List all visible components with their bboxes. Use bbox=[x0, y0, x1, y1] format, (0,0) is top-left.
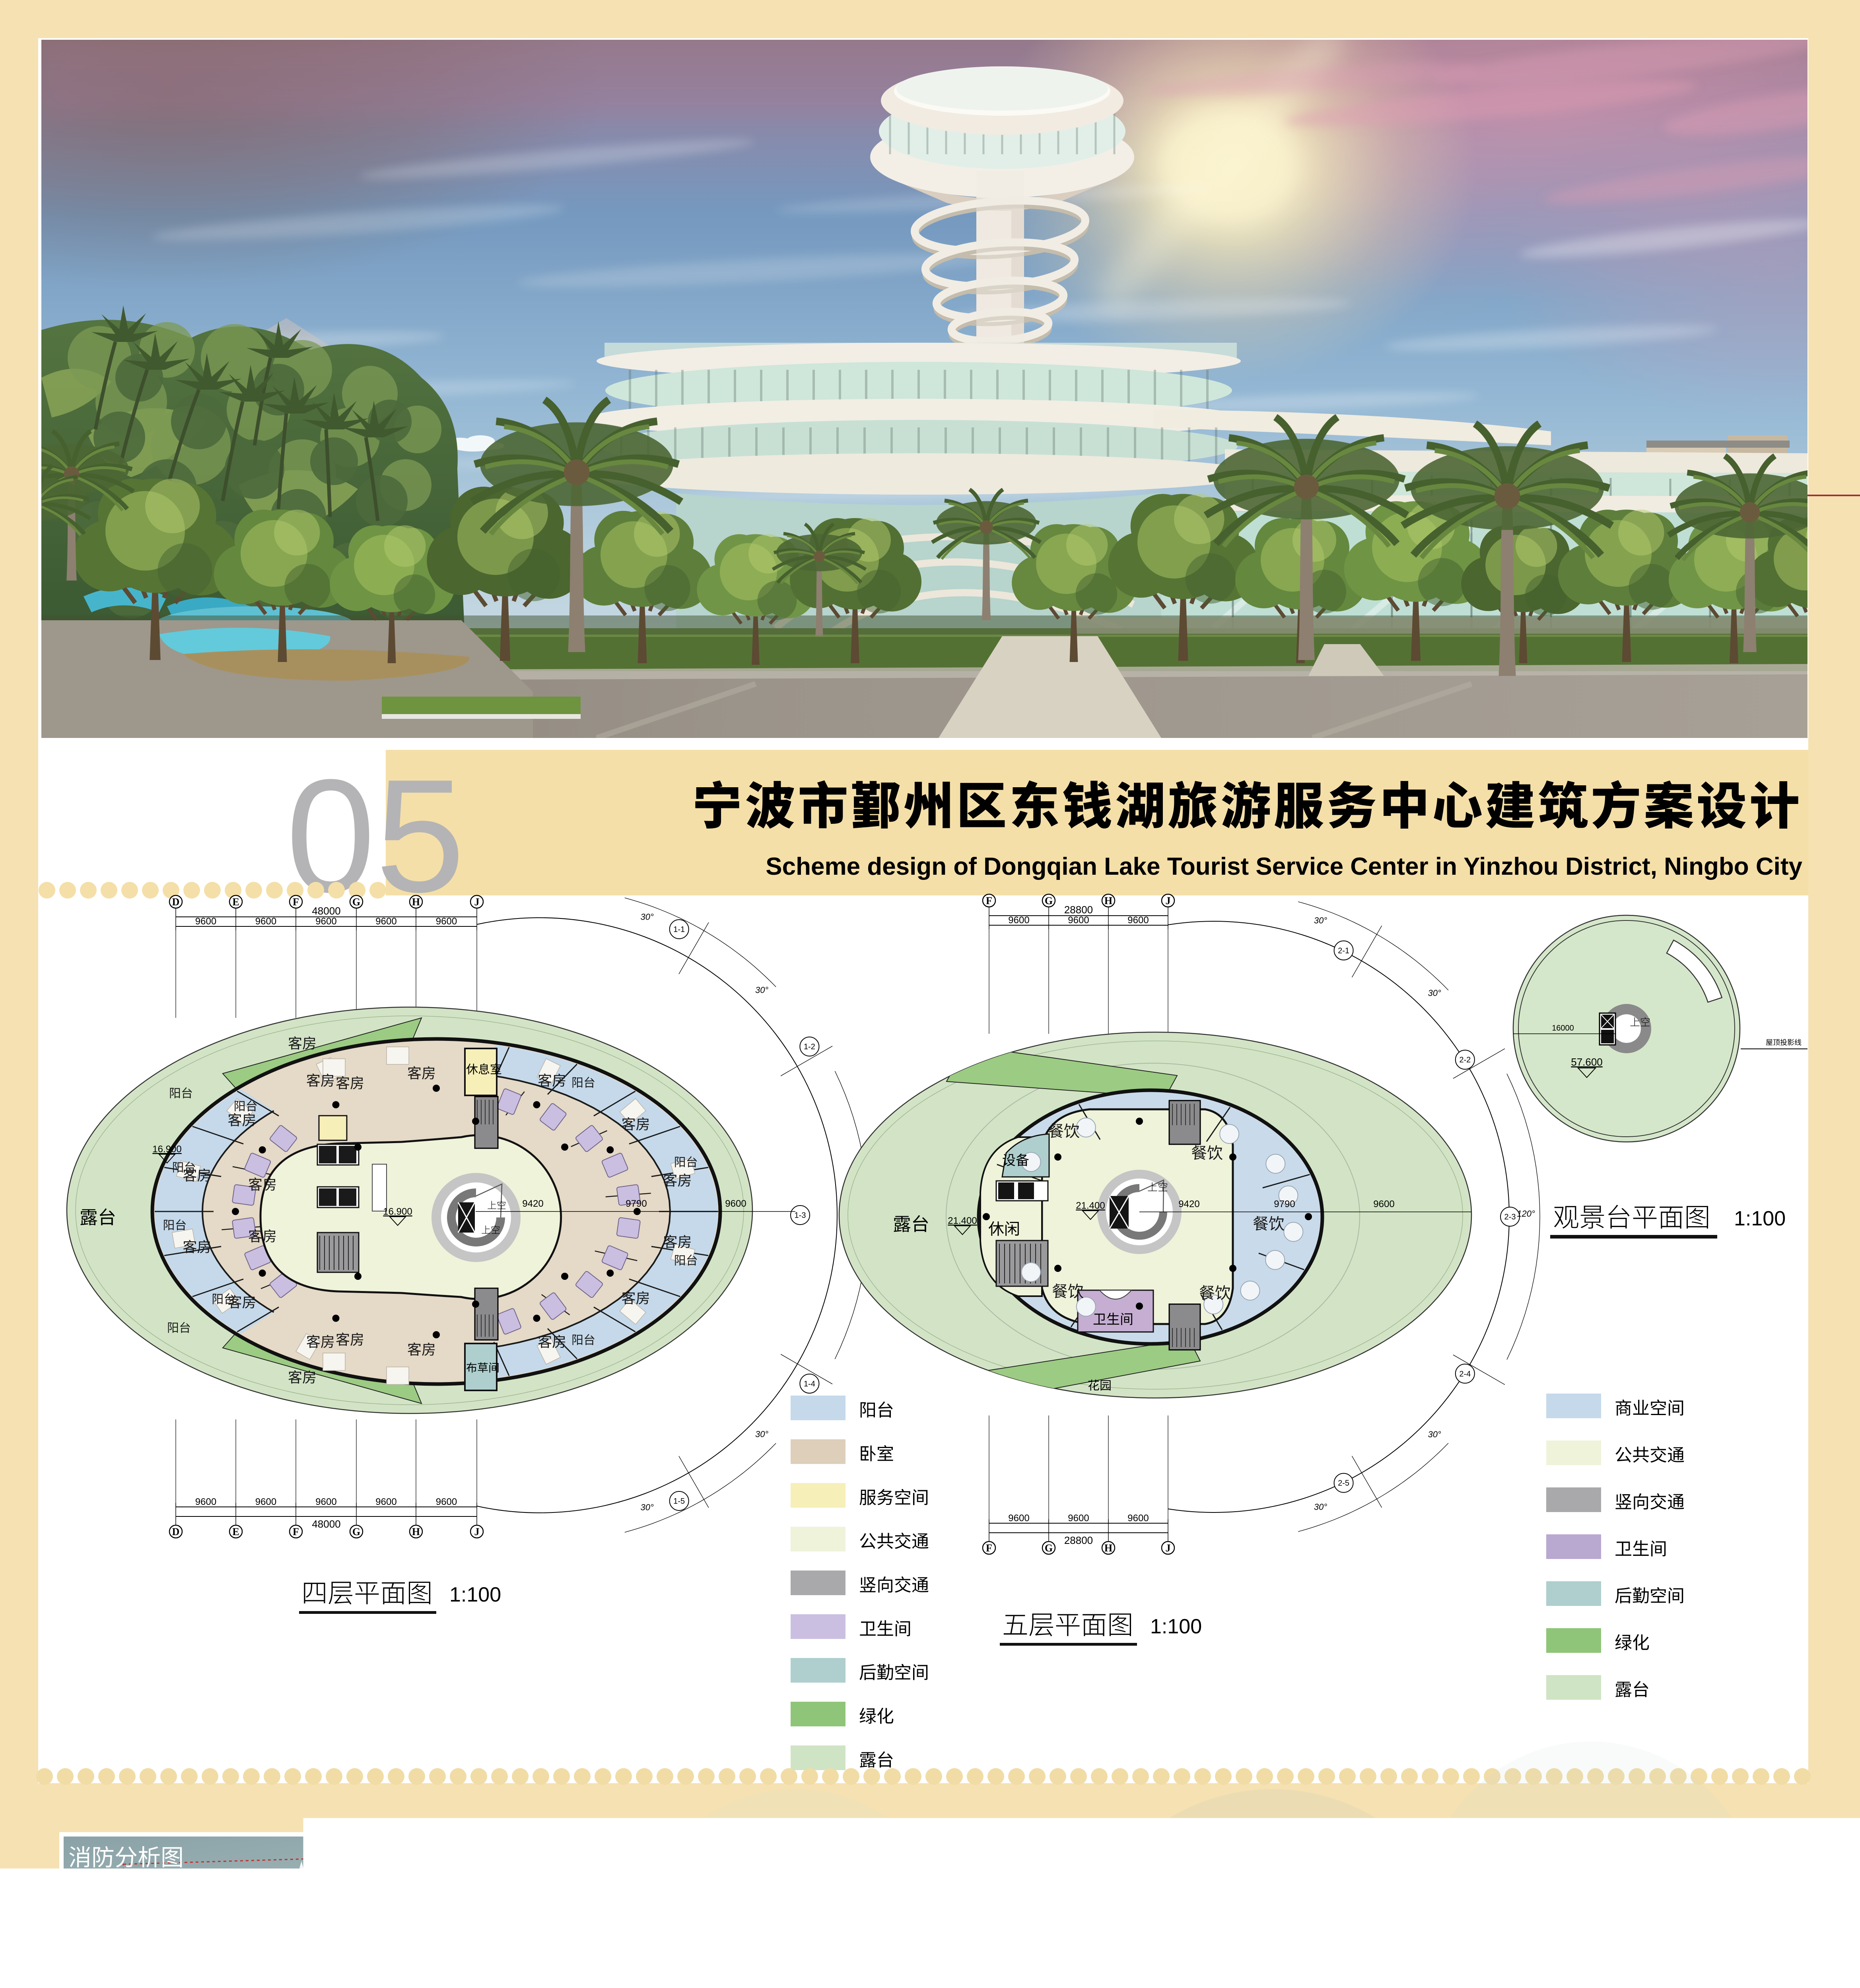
svg-text:9600: 9600 bbox=[725, 1198, 746, 1209]
svg-text:28800: 28800 bbox=[1064, 904, 1093, 916]
svg-text:30°: 30° bbox=[1314, 915, 1327, 925]
svg-text:1-3: 1-3 bbox=[795, 1211, 806, 1220]
svg-text:F: F bbox=[293, 896, 299, 908]
svg-text:16.900: 16.900 bbox=[152, 1144, 181, 1155]
svg-text:G: G bbox=[352, 1526, 360, 1538]
svg-text:30°: 30° bbox=[755, 1429, 768, 1439]
svg-text:9600: 9600 bbox=[315, 916, 336, 927]
svg-text:16.900: 16.900 bbox=[383, 1206, 412, 1217]
svg-text:J: J bbox=[1166, 895, 1171, 907]
svg-text:1-2: 1-2 bbox=[804, 1043, 815, 1051]
svg-text:2-2: 2-2 bbox=[1459, 1056, 1471, 1064]
svg-text:H: H bbox=[412, 896, 420, 908]
svg-text:9600: 9600 bbox=[315, 1497, 336, 1507]
svg-text:21.400: 21.400 bbox=[1076, 1200, 1105, 1211]
svg-text:9790: 9790 bbox=[1274, 1199, 1295, 1209]
svg-text:9600: 9600 bbox=[195, 916, 216, 927]
svg-text:30°: 30° bbox=[1428, 988, 1441, 998]
svg-text:F: F bbox=[986, 895, 992, 907]
svg-text:J: J bbox=[474, 896, 480, 908]
svg-text:9600: 9600 bbox=[436, 916, 457, 927]
svg-text:9600: 9600 bbox=[375, 1497, 396, 1507]
svg-text:120°: 120° bbox=[1517, 1209, 1535, 1219]
svg-text:30°: 30° bbox=[641, 912, 654, 922]
svg-text:2-4: 2-4 bbox=[1459, 1370, 1471, 1378]
svg-text:9600: 9600 bbox=[255, 1497, 276, 1507]
svg-text:9600: 9600 bbox=[195, 1497, 216, 1507]
svg-text:D: D bbox=[172, 1526, 180, 1538]
svg-text:9600: 9600 bbox=[1373, 1199, 1394, 1209]
svg-text:9790: 9790 bbox=[626, 1198, 647, 1209]
svg-text:E: E bbox=[232, 896, 239, 908]
svg-text:1:100: 1:100 bbox=[449, 1583, 501, 1606]
svg-text:9600: 9600 bbox=[1068, 1513, 1089, 1524]
svg-text:30°: 30° bbox=[1428, 1429, 1441, 1439]
svg-text:48000: 48000 bbox=[312, 905, 340, 917]
svg-text:30°: 30° bbox=[755, 985, 768, 995]
svg-text:J: J bbox=[1166, 1542, 1171, 1554]
svg-text:9600: 9600 bbox=[255, 916, 276, 927]
svg-text:28800: 28800 bbox=[1064, 1534, 1093, 1546]
svg-text:1:100: 1:100 bbox=[1734, 1207, 1786, 1230]
svg-text:2-5: 2-5 bbox=[1338, 1479, 1349, 1488]
svg-text:F: F bbox=[293, 1526, 299, 1538]
svg-text:21.400: 21.400 bbox=[948, 1215, 977, 1226]
svg-text:9600: 9600 bbox=[1008, 915, 1029, 926]
svg-text:H: H bbox=[1104, 895, 1112, 907]
svg-text:9600: 9600 bbox=[1008, 1513, 1029, 1524]
svg-text:9600: 9600 bbox=[436, 1497, 457, 1507]
svg-text:9600: 9600 bbox=[1068, 915, 1089, 926]
svg-text:G: G bbox=[1045, 895, 1053, 907]
svg-text:9420: 9420 bbox=[1178, 1199, 1199, 1209]
svg-text:F: F bbox=[986, 1542, 992, 1554]
svg-text:G: G bbox=[352, 896, 360, 908]
svg-text:D: D bbox=[172, 896, 180, 908]
svg-text:1:100: 1:100 bbox=[1150, 1615, 1202, 1638]
svg-text:Scheme design of Dongqian Lake: Scheme design of Dongqian Lake Tourist S… bbox=[766, 853, 1802, 880]
svg-text:9420: 9420 bbox=[522, 1198, 543, 1209]
svg-text:57.600: 57.600 bbox=[1571, 1056, 1603, 1068]
svg-text:9600: 9600 bbox=[375, 916, 396, 927]
svg-text:H: H bbox=[1104, 1542, 1112, 1554]
svg-text:30°: 30° bbox=[1314, 1502, 1327, 1512]
svg-text:2-1: 2-1 bbox=[1338, 946, 1349, 955]
svg-text:16000: 16000 bbox=[1552, 1024, 1574, 1033]
svg-text:E: E bbox=[232, 1526, 239, 1538]
svg-text:1-4: 1-4 bbox=[804, 1380, 815, 1388]
svg-text:9600: 9600 bbox=[1127, 1513, 1149, 1524]
svg-text:05: 05 bbox=[286, 745, 465, 926]
svg-text:J: J bbox=[474, 1526, 480, 1538]
svg-text:G: G bbox=[1045, 1542, 1053, 1554]
svg-text:H: H bbox=[412, 1526, 420, 1538]
svg-text:1-1: 1-1 bbox=[673, 925, 685, 934]
svg-text:48000: 48000 bbox=[312, 1518, 340, 1530]
svg-text:1-5: 1-5 bbox=[673, 1497, 685, 1506]
svg-text:2-3: 2-3 bbox=[1504, 1213, 1516, 1221]
svg-text:9600: 9600 bbox=[1127, 915, 1149, 926]
svg-text:30°: 30° bbox=[641, 1502, 654, 1512]
